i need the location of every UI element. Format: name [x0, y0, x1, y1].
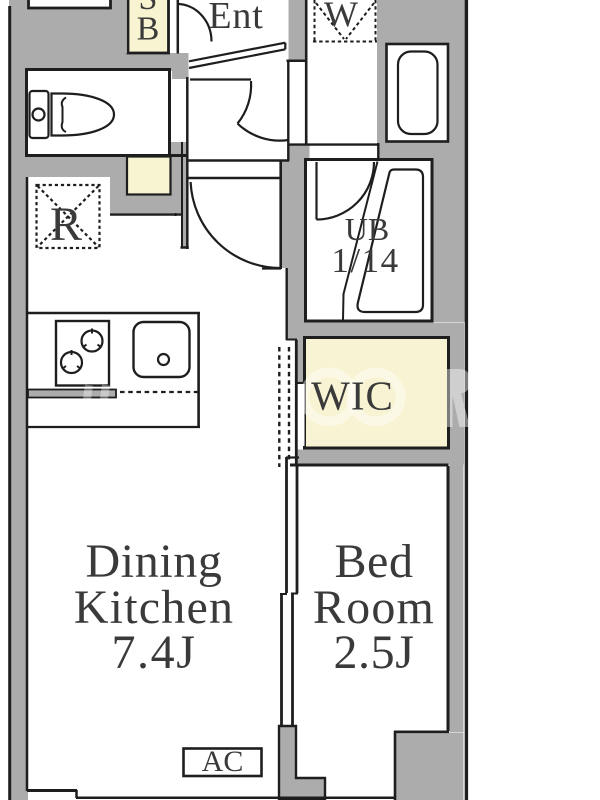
svg-text:1/14: 1/14 [331, 241, 399, 280]
svg-text:W: W [324, 0, 358, 34]
svg-text:WIC: WIC [311, 373, 394, 419]
svg-text:7.4J: 7.4J [111, 626, 196, 679]
svg-text:B: B [137, 11, 160, 48]
svg-text:Ent: Ent [208, 0, 263, 37]
svg-text:R: R [50, 198, 82, 251]
svg-text:AC: AC [202, 745, 244, 778]
svg-text:2.5J: 2.5J [333, 626, 414, 679]
